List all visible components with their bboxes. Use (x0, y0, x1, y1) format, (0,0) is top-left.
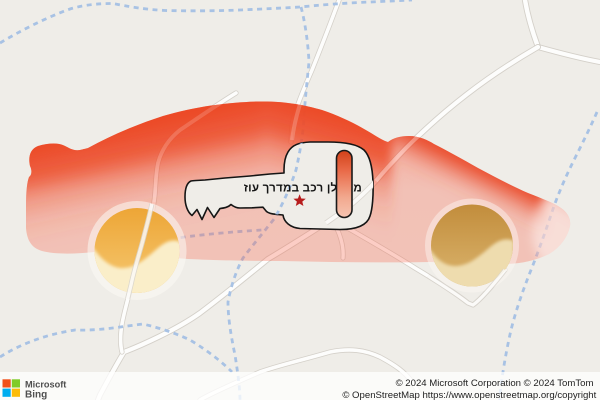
svg-text:© 2024 Microsoft Corporation ©: © 2024 Microsoft Corporation © 2024 TomT… (396, 378, 594, 389)
svg-text:© OpenStreetMap https://www.op: © OpenStreetMap https://www.openstreetma… (342, 390, 596, 400)
svg-text:Bing: Bing (25, 389, 47, 400)
svg-text:Microsoft: Microsoft (25, 379, 66, 389)
